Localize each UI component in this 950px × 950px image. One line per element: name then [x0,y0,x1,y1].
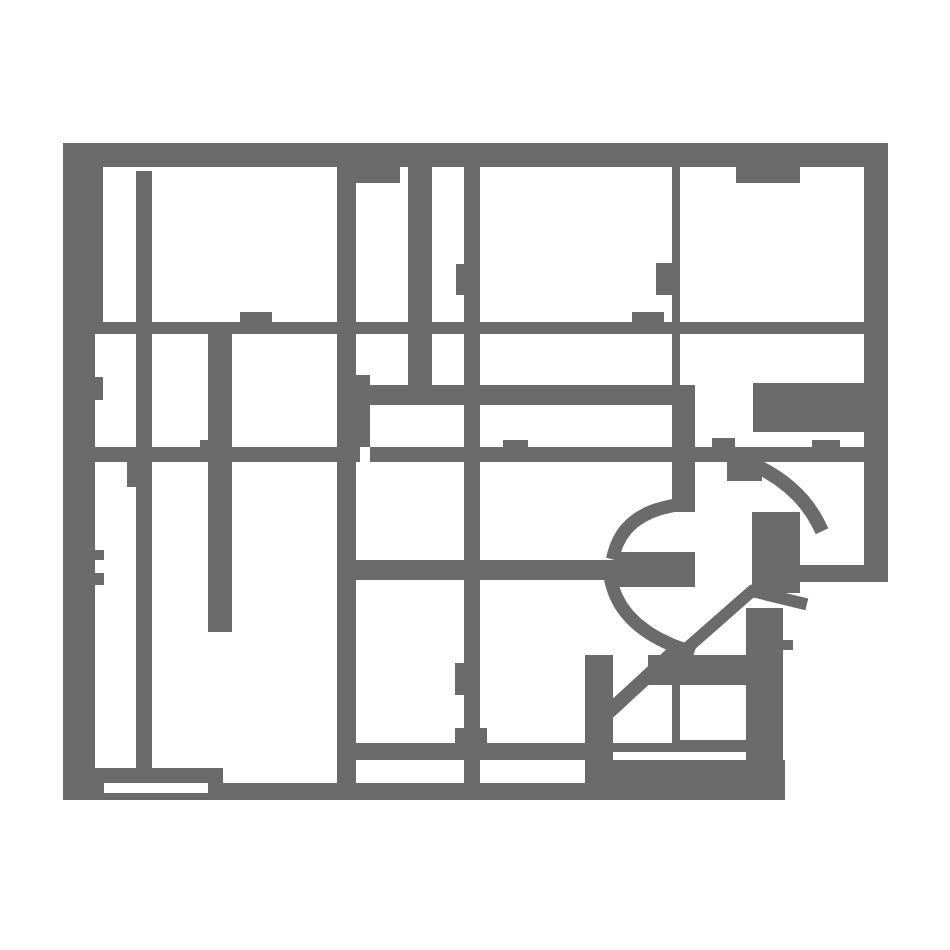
floorplan-map [0,0,950,950]
bar-right [800,565,888,582]
bump-left-wall-b [95,550,104,560]
right-wall [864,167,888,582]
wall-b-vertical [337,183,356,783]
bottom-wall-left [63,783,104,800]
block-right-upper [753,383,864,432]
bump-band2-a [503,440,528,447]
bump-left-wall-a [95,377,103,400]
band-2 [337,385,695,405]
left-wall-lower [63,322,95,800]
wall-a-vertical [136,171,152,768]
bump-room-top-left [240,312,272,322]
wall-d-bump-lower [455,663,464,695]
wall-d-bump-upper [456,264,464,295]
band-5-mid [600,743,673,752]
band-5-left [337,743,600,760]
bump-left-wall-c [95,573,104,585]
bottom-wall-main [208,783,785,800]
bump-band2-c [812,440,840,447]
column-bottom-right [746,608,783,800]
wall-d-vertical [464,165,480,800]
band-3-left [63,447,360,462]
band-5-right [680,740,752,752]
floorplan-svg [0,0,950,950]
block-small-mid [632,312,664,322]
wall-a-step [127,462,136,487]
top-wall-lintel [337,143,400,183]
bump-top-right [736,165,800,183]
tiny-block [783,640,793,650]
band-3-right [370,447,888,462]
wall-c-vertical [408,165,432,405]
wall-e-bump [656,263,680,295]
band-4-bottom-left [95,768,223,783]
wall-d-foot [455,728,487,743]
left-wall-upper [63,167,103,322]
top-wall [63,143,888,167]
blob-center [615,552,695,587]
wall-f-cap [200,440,208,447]
band-1 [63,322,865,334]
bar-center [337,560,615,580]
bump-band2-b [712,438,735,447]
bottom-wall-under-slot [104,793,208,800]
wall-f-vertical [208,334,232,632]
block-right-mid [752,512,800,593]
